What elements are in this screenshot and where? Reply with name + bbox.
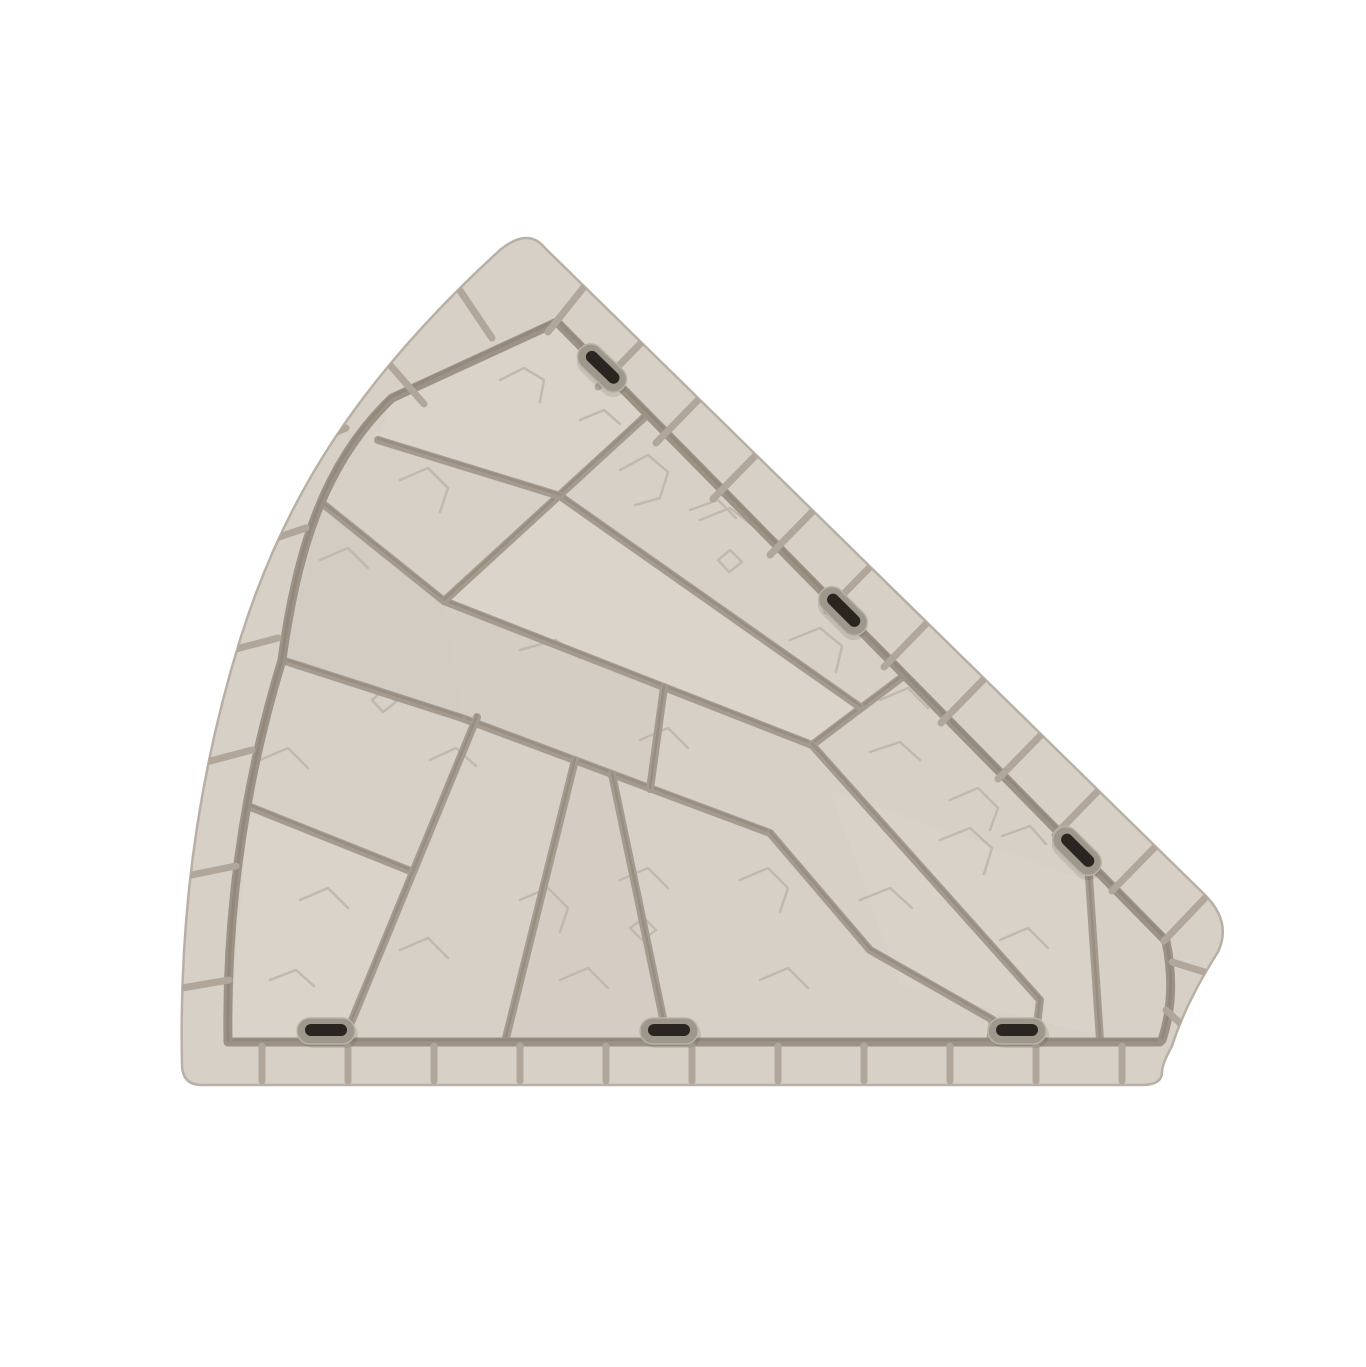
illustration-canvas — [0, 0, 1366, 1367]
connector-slot — [297, 1018, 358, 1048]
connector-slot — [988, 1018, 1049, 1048]
connector-slot — [640, 1018, 701, 1048]
slot-hole — [305, 1024, 347, 1036]
slot-hole — [996, 1024, 1038, 1036]
slot-hole — [648, 1024, 690, 1036]
stone-wedge-illustration — [0, 0, 1366, 1367]
